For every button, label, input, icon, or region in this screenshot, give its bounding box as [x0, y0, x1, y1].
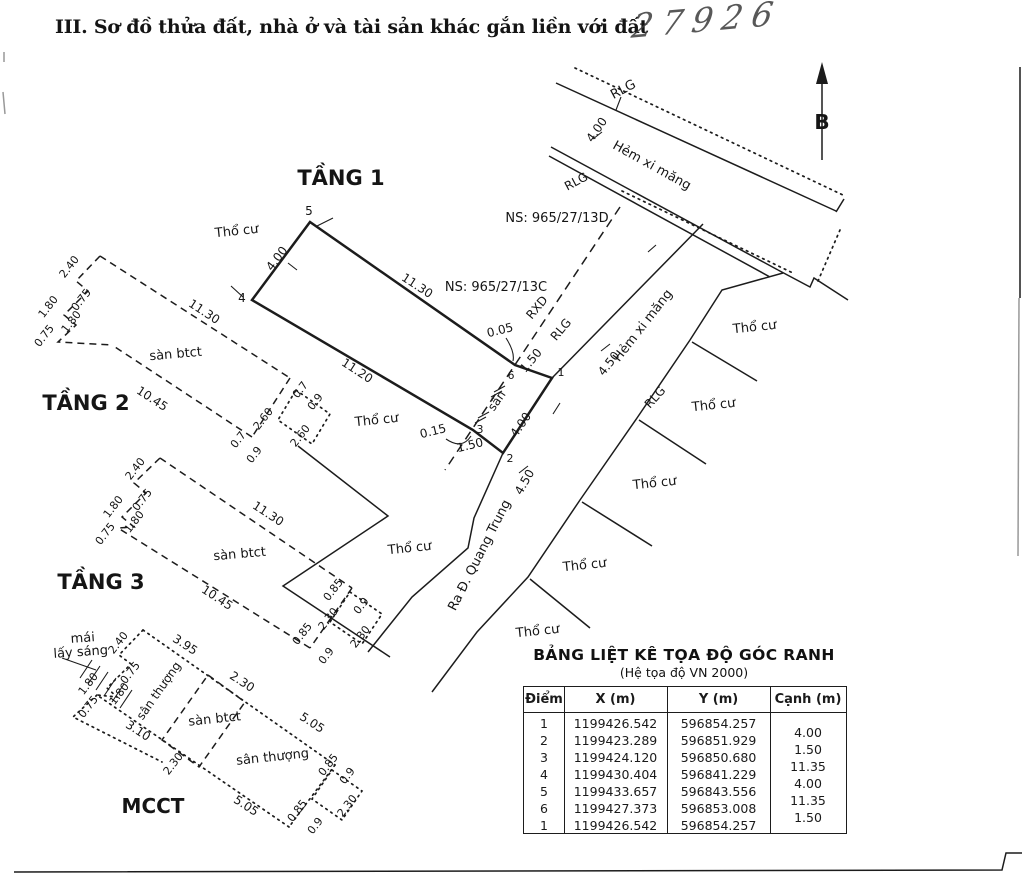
table-cell: 596843.556: [667, 783, 770, 800]
table-cell: 4.00: [770, 775, 846, 792]
floor3-title: TẦNG 3: [57, 566, 144, 594]
table-cell: 4: [524, 766, 564, 783]
dim: 0.9: [351, 595, 372, 617]
road-name-label: Ra Đ. Quang Trung: [445, 497, 514, 613]
boundary-code-label: RXD: [523, 293, 550, 322]
point-number: 4: [238, 291, 246, 305]
dim: 3.95: [170, 631, 200, 657]
table-column-diem: Điểm 1234561: [524, 687, 565, 833]
boundary-code-label: RLG: [548, 316, 574, 344]
dim: 1.80: [76, 670, 101, 697]
table-cell: 1199426.542: [564, 817, 667, 834]
floor2-title: TẦNG 2: [42, 387, 129, 415]
point-number: 2: [507, 452, 514, 465]
dim: 4.50: [512, 467, 537, 497]
dim: 0.9: [244, 444, 265, 466]
point-number: 1: [558, 366, 565, 379]
table-cell: 596854.257: [667, 817, 770, 834]
land-use-label: Thổ cư: [561, 556, 608, 576]
boundary-code-label: RLG: [562, 170, 590, 194]
dim: 1.50: [517, 346, 545, 375]
area-label: sân: [485, 388, 509, 413]
area-label: sàn btct: [213, 545, 267, 565]
table-header-canh: Cạnh (m): [770, 687, 846, 713]
land-use-label: Thổ cư: [631, 474, 678, 494]
area-label: lấy sáng: [53, 643, 109, 662]
boundary-code-label: RLG: [608, 77, 638, 103]
table-cell: 5: [524, 783, 564, 800]
dim: 0.9: [316, 645, 337, 667]
table-header-diem: Điểm: [524, 687, 564, 713]
dim: 2.40: [106, 629, 131, 656]
table-cell: 1.50: [770, 741, 846, 758]
dim: 0.9: [305, 391, 326, 413]
table-column-y: Y (m) 596854.257596851.929596850.6805968…: [667, 687, 771, 833]
dim: 5.05: [297, 709, 327, 735]
table-cell: 11.35: [770, 792, 846, 809]
dim: 5.05: [231, 792, 261, 818]
alley-name-label: Hẻm xi măng: [611, 287, 676, 365]
dim: 2.60: [251, 405, 276, 432]
area-label: sàn btct: [188, 709, 242, 729]
dim: 0.85: [321, 576, 346, 603]
scanned-document-page: III. Sơ đồ thửa đất, nhà ở và tài sản kh…: [0, 0, 1024, 883]
floor1-title: TẦNG 1: [297, 162, 384, 190]
table-cell: 4.00: [770, 724, 846, 741]
dim: 0.7: [228, 429, 249, 451]
land-use-label: Thổ cư: [386, 539, 433, 559]
dim: 0.9: [337, 765, 358, 787]
coordinate-table-subtitle: (Hệ tọa độ VN 2000): [517, 665, 851, 680]
dim: 10.45: [134, 383, 170, 413]
house-number-label: NS: 965/27/13D: [505, 211, 608, 226]
land-use-label: Thổ cư: [514, 622, 561, 642]
land-use-label: Thổ cư: [353, 411, 400, 431]
table-cell: 1199423.289: [564, 732, 667, 749]
table-cell: 1199433.657: [564, 783, 667, 800]
coordinate-table: BẢNG LIỆT KÊ TỌA ĐỘ GÓC RANH (Hệ tọa độ …: [517, 646, 851, 834]
dim: 0.75: [130, 486, 155, 513]
dim: 0.75: [93, 520, 118, 547]
land-use-label: Thổ cư: [731, 318, 778, 338]
dim: 2.60: [288, 422, 313, 449]
dim: 1.80: [36, 293, 61, 320]
table-cell: 1199424.120: [564, 749, 667, 766]
coordinate-table-title: BẢNG LIỆT KÊ TỌA ĐỘ GÓC RANH: [517, 646, 851, 664]
dim: 0.9: [305, 815, 326, 837]
dim: 4.00: [583, 115, 610, 145]
dim: 2.40: [57, 253, 82, 280]
table-cell: 1: [524, 715, 564, 732]
dim: 0.15: [418, 421, 447, 441]
dim: 0.05: [485, 320, 514, 340]
table-cell: 1.50: [770, 809, 846, 826]
table-cell: 596841.229: [667, 766, 770, 783]
dim: 11.20: [339, 355, 375, 385]
alley-top-outline: [549, 68, 848, 300]
land-use-label: Thổ cư: [690, 396, 737, 416]
dim: 0.85: [290, 620, 315, 647]
table-cell: 11.35: [770, 758, 846, 775]
dim: 2.30: [335, 792, 360, 819]
table-column-canh: Cạnh (m) 4.001.5011.354.0011.351.50: [770, 687, 846, 833]
dim: 1.50: [455, 435, 484, 455]
table-cell: 1: [524, 817, 564, 834]
table-cell: 596851.929: [667, 732, 770, 749]
table-header-x: X (m): [564, 687, 667, 713]
coordinate-table-grid: Điểm 1234561 X (m) 1199426.5421199423.28…: [523, 686, 847, 834]
table-cell: 1199430.404: [564, 766, 667, 783]
north-label: B: [814, 110, 829, 134]
rxd-dashed-line: [445, 207, 620, 470]
dim: 10.45: [199, 582, 235, 612]
dim: 4.00: [263, 244, 290, 274]
table-cell: 596850.680: [667, 749, 770, 766]
table-cell: 596853.008: [667, 800, 770, 817]
point-number: 3: [477, 423, 484, 436]
table-header-y: Y (m): [667, 687, 770, 713]
dim: 1.80: [59, 308, 84, 335]
table-column-x: X (m) 1199426.5421199423.2891199424.1201…: [564, 687, 668, 833]
dim: 2.40: [123, 455, 148, 482]
boundary-code-label: RLG: [642, 384, 669, 411]
dim: 0.75: [32, 322, 57, 349]
house-number-label: NS: 965/27/13C: [445, 280, 547, 295]
point-number: 5: [305, 204, 313, 218]
table-cell: 3: [524, 749, 564, 766]
table-cell: 596854.257: [667, 715, 770, 732]
land-use-label: Thổ cư: [213, 222, 260, 242]
point-number: 6: [508, 369, 515, 382]
dim: 0.85: [285, 797, 310, 824]
site-plan-drawing: TẦNG 1TẦNG 2TẦNG 3MCCTBThổ cưThổ cưThổ c…: [0, 0, 1024, 883]
dim: 3.10: [123, 717, 153, 743]
dim: 1.80: [122, 508, 147, 535]
area-label: sàn btct: [149, 345, 203, 365]
table-cell: 1199427.373: [564, 800, 667, 817]
table-cell: 2: [524, 732, 564, 749]
dim: 4.00: [507, 410, 534, 440]
area-label: sân thượng: [235, 746, 309, 769]
mcct-title: MCCT: [122, 794, 185, 818]
table-cell: 6: [524, 800, 564, 817]
dim: 0.75: [76, 693, 101, 720]
table-cell: 1199426.542: [564, 715, 667, 732]
dim: 11.30: [250, 498, 286, 528]
dim: 2.30: [348, 623, 373, 650]
dim: 2.30: [227, 668, 257, 694]
